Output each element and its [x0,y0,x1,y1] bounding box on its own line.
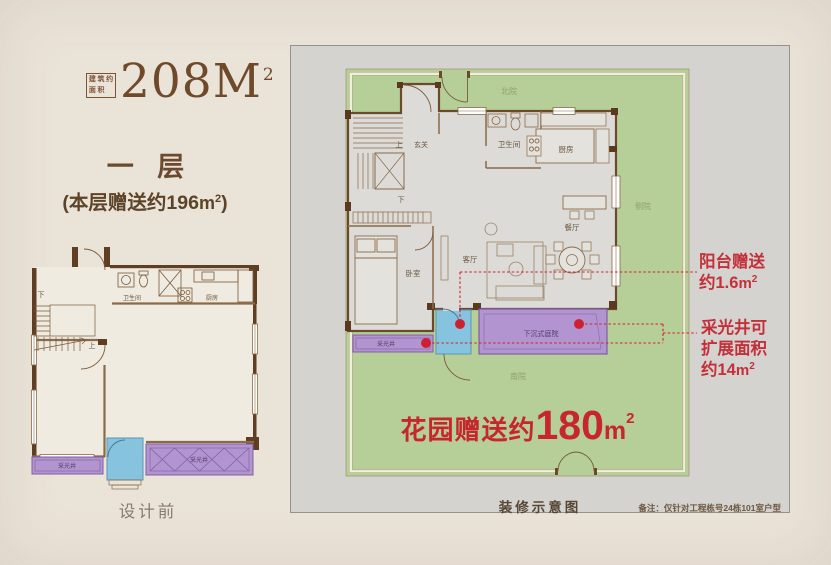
dining-label: 餐厅 [565,223,580,232]
left-floor-plan: 卫生间 厨房 下 上 采光井 采光井 [28,244,268,492]
bed-icon [355,236,397,324]
area-prefix-char: 筑 [97,76,104,84]
bedroom-label: 卧室 [406,268,421,278]
floor-bonus-text: (本层赠送约196 [62,192,199,214]
lightwell-annotation: 采光井可 扩展面积 约14m2 [701,318,767,383]
area-prefix-box: 建 筑 约 面 积 [86,73,116,98]
garden-gift-label: 花园赠送约 [400,410,535,447]
lightwell-annotation-line2: 扩展面积 [701,339,767,360]
entry-up-label: 上 [396,140,403,149]
down-label: 下 [398,196,405,204]
left-plan-caption: 设计前 [28,498,268,522]
area-title: 建 筑 约 面 积 208M 2 [86,60,274,105]
left-vestibule-blue [107,438,143,489]
left-down-label: 下 [38,291,45,299]
left-kitchen-label: 厨房 [206,294,218,302]
garden-gift-banner: 花园赠送约180m2 [346,402,689,449]
balcony-annotation-line2: 约1.6m2 [699,273,765,296]
entry-label: 玄关 [414,140,428,149]
floor-bonus-close: ) [221,192,228,214]
left-up-label: 上 [89,341,96,350]
left-lightwell-right-label: 采光井 [190,456,208,464]
sunken-courtyard-label: 下沉式庭院 [524,329,559,338]
living-label: 客厅 [463,254,478,264]
left-plan-interior [34,267,255,459]
area-sup: 2 [263,65,274,85]
garden-gift-unit: m [604,417,626,446]
floor-bonus-sup: 2 [215,193,221,205]
south-yard-label: 南院 [510,371,526,381]
garden-gift-sup: 2 [626,410,634,427]
floor-bonus-unit: m [199,193,215,213]
entry-door-arc [84,249,105,270]
north-yard-label: 北院 [501,86,517,96]
lightwell-annotation-line3: 约14m2 [701,360,767,383]
area-prefix-char: 面 [89,87,96,95]
garden-gift-value: 180 [536,402,604,449]
bath-label: 卫生间 [498,139,521,149]
side-yard-label: 侧院 [635,201,651,211]
area-prefix-char: 建 [89,76,96,84]
left-bath-label: 卫生间 [123,294,141,302]
schematic-panel: 北院 侧院 南院 上 玄关 下 [290,45,790,513]
panel-note: 备注：仅针对工程栋号24栋101室户型 [638,502,781,514]
left-lightwell-left-label: 采光井 [58,462,76,470]
balcony-annotation: 阳台赠送 约1.6m2 [699,252,765,296]
brochure-page: { "colors": { "accent_red": "#c6262e", "… [0,0,831,565]
kitchen-label: 厨房 [559,144,574,154]
floor-bonus: (本层赠送约196m2) [36,186,254,215]
lightwell-label: 采光井 [377,340,395,348]
area-prefix-char: 约 [106,76,113,84]
area-value: 208M [120,60,262,105]
lightwell-annotation-line1: 采光井可 [701,318,767,339]
area-prefix-char: 积 [97,87,104,95]
floor-label: 一 层 [63,145,228,184]
